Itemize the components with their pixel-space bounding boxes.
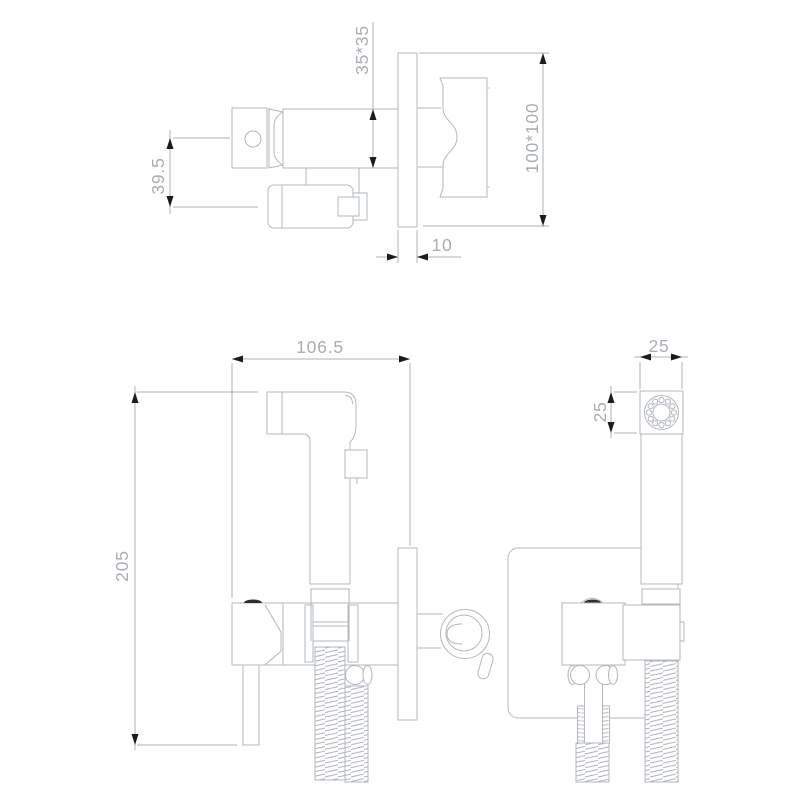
dim-overall-depth: 106.5 <box>296 337 344 357</box>
outlet-nub <box>338 197 359 216</box>
lever-pivot-cap <box>244 600 262 604</box>
mixer-lever <box>243 665 259 745</box>
dim-sprayer-head-height: 25 <box>590 401 610 422</box>
bottom-side-view <box>232 392 494 782</box>
mixer-body-front <box>562 603 625 665</box>
dim-sprayer-head-width: 25 <box>648 336 669 356</box>
wall-plate-edge-bottom <box>398 548 417 720</box>
sprayer-hose-front <box>645 661 678 782</box>
dim-wall-plate-size: 100*100 <box>522 103 542 174</box>
hand-sprayer-side <box>267 392 356 584</box>
dim-plate-thickness: 10 <box>431 235 452 255</box>
valve-body <box>283 109 398 168</box>
sprayer-body-front <box>641 434 682 584</box>
dim-spout-offset: 39.5 <box>148 157 168 194</box>
sprayer-hose-side <box>315 647 345 780</box>
dim-body-section: 35*35 <box>352 25 372 75</box>
bottom-front-view <box>508 391 684 782</box>
supply-hose-front <box>576 743 609 782</box>
wall-bracket <box>345 450 367 478</box>
dim-overall-height: 205 <box>112 550 132 582</box>
sprayer-holder-front <box>623 605 680 660</box>
technical-drawing-canvas: 35*35 39.5 100*100 10 106.5 205 25 25 <box>0 0 800 800</box>
hose-nut-side <box>363 666 372 685</box>
supply-hose-side <box>345 686 368 782</box>
handle-block <box>232 108 267 168</box>
wall-plate-edge <box>398 53 417 227</box>
rough-in-lever <box>477 652 495 680</box>
concealed-valve-body <box>440 78 487 197</box>
hose-nut-left <box>571 666 590 685</box>
top-front-view <box>398 53 490 227</box>
handle-clamp <box>269 109 283 168</box>
bidet-mixer-drawing: 35*35 39.5 100*100 10 106.5 205 25 25 <box>0 0 800 800</box>
